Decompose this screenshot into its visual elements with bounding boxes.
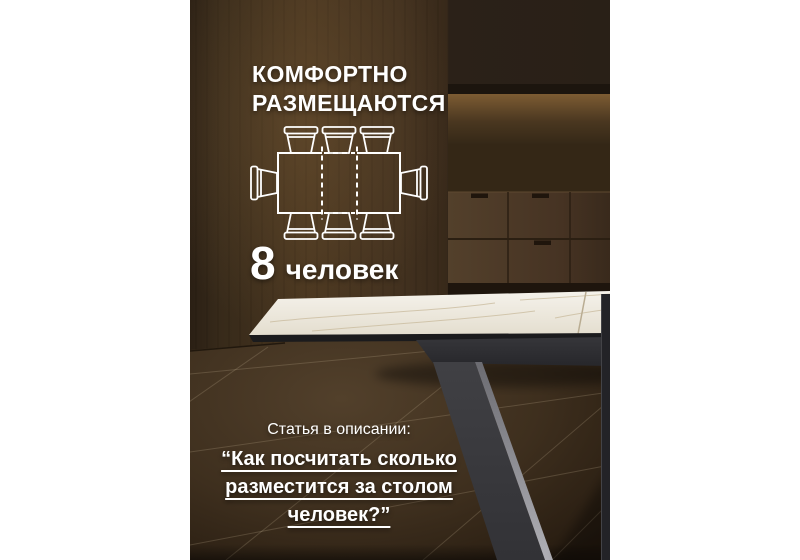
table-seating-diagram-icon [245,122,435,248]
heading-line-2: РАЗМЕЩАЮТСЯ [252,89,446,118]
poster-overlay: КОМФОРТНО РАЗМЕЩАЮТСЯ [190,0,610,560]
heading-line-1: КОМФОРТНО [252,60,446,89]
chair-bottom-1 [285,213,318,239]
heading: КОМФОРТНО РАЗМЕЩАЮТСЯ [252,60,446,117]
footer-note: Статья в описании: “Как посчитать скольк… [199,419,479,529]
capacity-label: человек [286,256,399,284]
chair-bottom-2 [323,213,356,239]
chair-top-3 [361,127,394,153]
chair-bottom-3 [361,213,394,239]
quote-line: “Как посчитать сколько [199,445,479,473]
footer-quote: “Как посчитать сколько разместится за ст… [199,445,479,529]
chair-top-2 [323,127,356,153]
chair-left [251,167,277,200]
left-margin [0,0,190,560]
quote-line: разместится за столом [199,473,479,501]
poster-canvas: КОМФОРТНО РАЗМЕЩАЮТСЯ [0,0,800,560]
right-margin [610,0,800,560]
capacity-number: 8 [250,240,276,286]
poster-image: КОМФОРТНО РАЗМЕЩАЮТСЯ [190,0,610,560]
capacity: 8 человек [250,240,398,286]
chair-right [401,167,427,200]
footer-intro: Статья в описании: [199,419,479,441]
quote-line: человек?” [199,501,479,529]
chair-top-1 [285,127,318,153]
